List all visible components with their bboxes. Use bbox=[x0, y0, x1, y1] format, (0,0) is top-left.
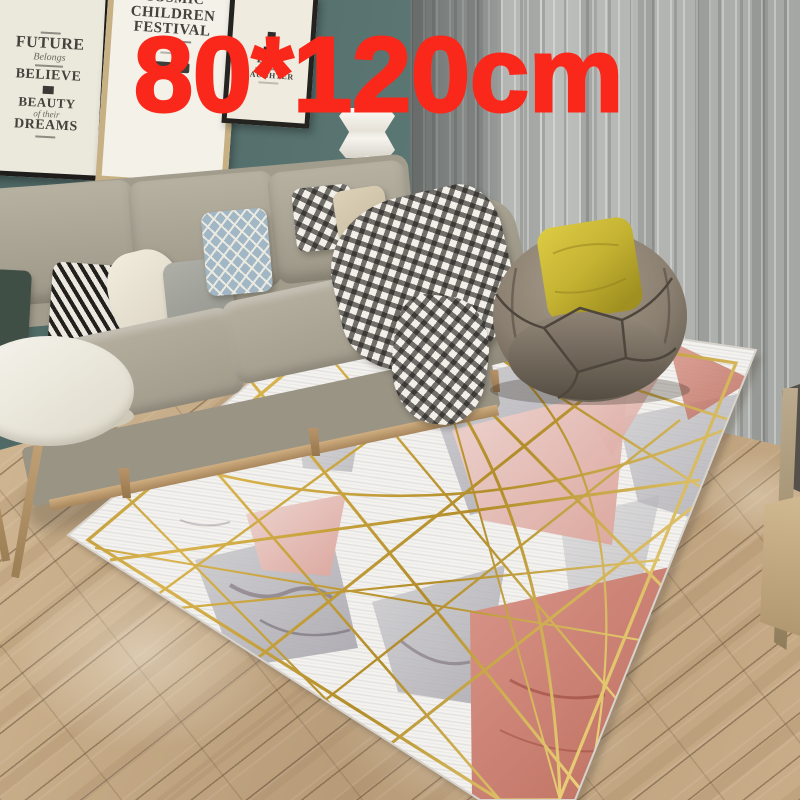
furniture-panel bbox=[760, 496, 800, 636]
wood-side-furniture bbox=[736, 378, 800, 662]
soccer-bean-bag bbox=[486, 208, 698, 408]
blue-lattice-pillow bbox=[200, 207, 273, 296]
product-photo-living-room: FUTURE Belongs BELIEVE BEAUTY of their D… bbox=[0, 0, 800, 800]
yellow-pillow bbox=[535, 215, 645, 323]
size-label-overlay: 80*120cm bbox=[134, 22, 623, 128]
green-pillow bbox=[0, 269, 32, 347]
